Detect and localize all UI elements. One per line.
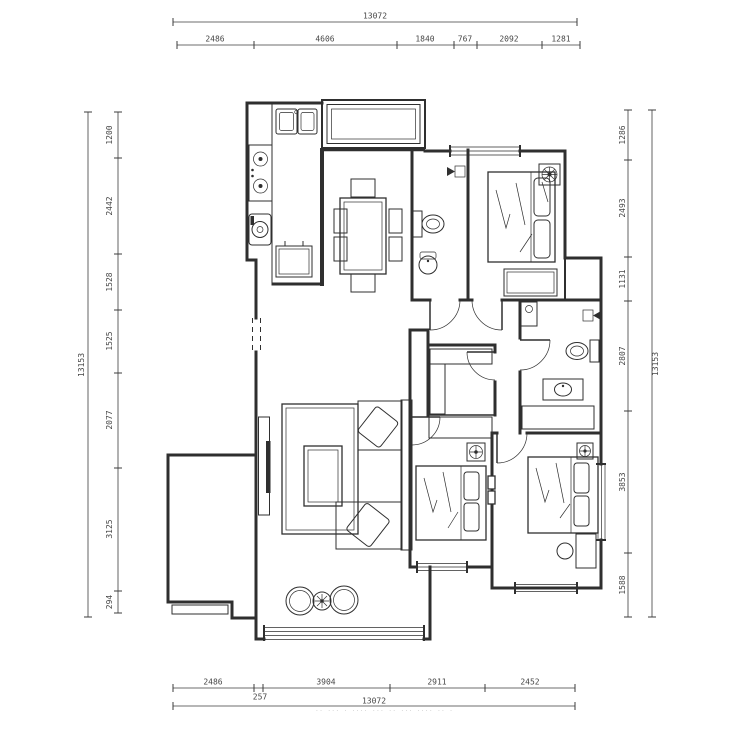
dim-label: 294 xyxy=(105,595,114,610)
entry-porch xyxy=(168,455,256,618)
walkin-closet xyxy=(429,349,492,438)
window-midbed xyxy=(417,561,467,573)
dim-total-bottom: 13072 xyxy=(362,697,386,706)
shower-icon xyxy=(447,166,465,177)
bedroom-master xyxy=(488,164,560,296)
toilet-icon xyxy=(566,340,599,362)
pillow-icon xyxy=(346,502,391,547)
door-bath-top xyxy=(430,300,460,330)
dim-label: 1528 xyxy=(105,272,114,291)
door-bath-main xyxy=(520,340,550,370)
window-bedroom2 xyxy=(515,582,577,594)
dim-label: 2486 xyxy=(205,35,224,44)
dim-total-right: 13153 xyxy=(651,352,660,376)
clothes-rack-icon xyxy=(430,364,445,414)
dimensions-left: 13153 1200 2442 1528 1525 2077 3125 294 xyxy=(77,112,122,617)
balcony xyxy=(286,586,358,615)
dim-label: 1200 xyxy=(105,125,114,144)
dim-label: 767 xyxy=(458,35,473,44)
dimensions-right: 1286 2493 1131 2807 3853 1588 13153 xyxy=(618,110,660,617)
round-chair-icon xyxy=(330,586,358,614)
dim-total-top: 13072 xyxy=(363,12,387,21)
double-sink-icon xyxy=(276,109,317,134)
shelf-icon xyxy=(521,302,537,326)
dim-label: 2486 xyxy=(203,678,222,687)
dim-label: 1525 xyxy=(105,331,114,350)
door-bedroom-mid xyxy=(412,417,440,445)
wardrobe-icon xyxy=(522,406,594,429)
kitchen-sink-icon xyxy=(249,214,271,245)
dim-label: 3853 xyxy=(618,472,627,491)
wardrobe-icon xyxy=(429,417,492,438)
sofa-icon xyxy=(336,400,412,550)
dimensions-bottom: 2486 257 3904 2911 2452 13072 ·· ··· · ·… xyxy=(173,678,575,716)
bedroom-right xyxy=(528,443,598,568)
shower-icon xyxy=(583,310,601,321)
dim-label: 2493 xyxy=(618,198,627,217)
dim-label: 2442 xyxy=(105,196,114,215)
basin-icon xyxy=(419,252,437,274)
door-closet xyxy=(467,352,495,380)
dim-label: 1281 xyxy=(551,35,570,44)
coffee-table-icon xyxy=(304,446,342,506)
dim-label: 2452 xyxy=(520,678,539,687)
dim-label: 1286 xyxy=(618,125,627,144)
stove-icon xyxy=(249,145,272,201)
floor-plan-canvas: 13072 2486 4606 1840 767 2092 1281 2486 … xyxy=(0,0,740,740)
chair-icon xyxy=(389,237,402,261)
watermark: ·· ··· · ···· ··· ·· ··· ···· ·· · xyxy=(316,707,454,715)
entry-opening-dashes xyxy=(253,318,261,352)
dim-label: 2092 xyxy=(499,35,518,44)
pillow-icon xyxy=(357,406,399,448)
desk-icon xyxy=(576,534,596,568)
fridge-icon xyxy=(276,241,312,277)
dim-label: 257 xyxy=(253,693,268,702)
dim-label: 3904 xyxy=(316,678,335,687)
chair-icon xyxy=(351,179,375,197)
bathroom-main xyxy=(521,302,601,429)
toilet-icon xyxy=(413,211,444,237)
dining-room xyxy=(334,179,402,292)
dim-label: 1588 xyxy=(618,575,627,594)
bathroom-top xyxy=(413,166,465,274)
doors xyxy=(412,300,550,463)
dim-label: 1131 xyxy=(618,269,627,288)
dim-label: 1840 xyxy=(415,35,434,44)
plant-table-icon xyxy=(313,592,331,610)
window-top xyxy=(450,145,520,157)
dim-label: 2807 xyxy=(618,346,627,365)
chair-icon xyxy=(389,209,402,233)
round-chair-icon xyxy=(286,587,314,615)
bed-icon xyxy=(528,457,598,533)
wardrobe-icon xyxy=(504,269,557,296)
door-bedroom2 xyxy=(497,433,527,463)
bedroom-middle xyxy=(416,443,486,540)
floor-plan-document: 13072 2486 4606 1840 767 2092 1281 2486 … xyxy=(0,0,740,740)
dim-label: 2077 xyxy=(105,410,114,429)
dim-label: 3125 xyxy=(105,519,114,538)
dimensions-top: 13072 2486 4606 1840 767 2092 1281 xyxy=(173,12,580,50)
bay-window xyxy=(322,100,425,150)
living-room xyxy=(259,400,413,550)
vanity-basin-icon xyxy=(543,379,583,400)
dim-label: 4606 xyxy=(315,35,334,44)
wall-niche xyxy=(488,491,495,504)
wall-niche xyxy=(488,476,495,489)
dim-label: 2911 xyxy=(427,678,446,687)
desk-chair-icon xyxy=(557,543,573,559)
kitchen xyxy=(249,103,317,284)
plant-icon xyxy=(467,443,485,461)
bed-icon xyxy=(416,466,486,540)
dim-total-left: 13153 xyxy=(77,353,86,377)
window-balcony xyxy=(264,625,424,641)
chair-icon xyxy=(351,274,375,292)
tv-cabinet-icon xyxy=(259,417,271,515)
door-bedroom-master xyxy=(472,300,502,330)
